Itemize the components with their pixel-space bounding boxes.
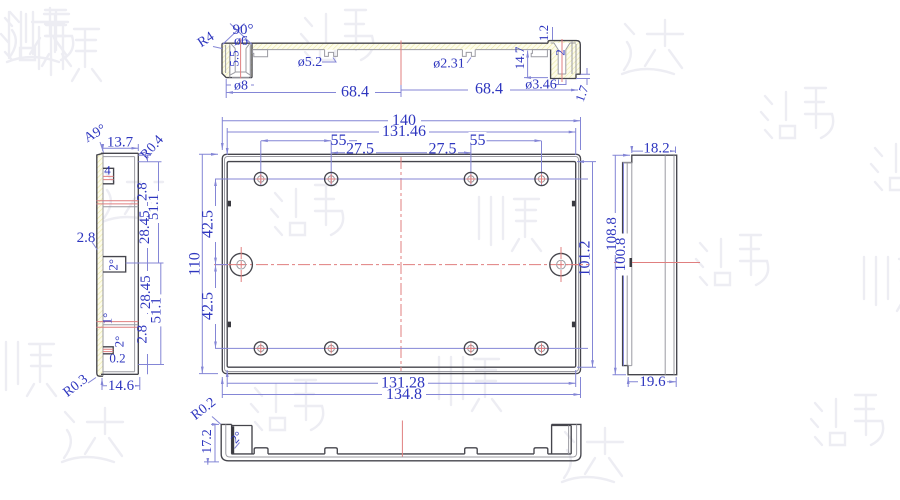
svg-text:R0.3: R0.3	[61, 372, 91, 400]
svg-text:0.2: 0.2	[109, 351, 125, 366]
svg-text:27.5: 27.5	[346, 141, 374, 158]
svg-text:110: 110	[187, 252, 204, 275]
svg-text:42.5: 42.5	[200, 292, 217, 320]
svg-text:42.5: 42.5	[200, 210, 217, 238]
svg-text:2: 2	[553, 49, 568, 56]
svg-text:134.8: 134.8	[386, 386, 422, 403]
svg-text:2.8: 2.8	[77, 230, 96, 246]
svg-text:131.46: 131.46	[382, 123, 426, 140]
svg-text:2.8: 2.8	[134, 325, 150, 344]
svg-text:13.7: 13.7	[107, 135, 134, 151]
svg-text:18.2: 18.2	[643, 140, 669, 156]
svg-text:2°: 2°	[228, 428, 246, 446]
svg-text:5.5: 5.5	[227, 50, 242, 66]
svg-text:100.8: 100.8	[613, 238, 629, 272]
svg-text:27.5: 27.5	[429, 141, 457, 158]
svg-text:R0.4: R0.4	[138, 133, 167, 163]
svg-text:2°: 2°	[106, 259, 121, 271]
svg-text:ø2.31: ø2.31	[433, 57, 465, 72]
svg-text:2°: 2°	[112, 336, 127, 348]
svg-text:68.4: 68.4	[341, 84, 369, 101]
svg-text:ø8: ø8	[234, 79, 248, 94]
svg-text:ø6: ø6	[234, 34, 248, 49]
svg-text:A9°: A9°	[82, 122, 109, 146]
svg-text:101.2: 101.2	[577, 241, 594, 277]
svg-text:1°: 1°	[100, 313, 115, 325]
svg-text:51.1: 51.1	[146, 194, 162, 220]
svg-text:4: 4	[104, 163, 111, 178]
svg-text:55: 55	[331, 132, 347, 149]
svg-text:ø3.46: ø3.46	[525, 78, 557, 93]
svg-text:R4: R4	[195, 29, 217, 50]
svg-text:68.4: 68.4	[475, 81, 503, 98]
svg-text:19.6: 19.6	[639, 374, 666, 390]
svg-text:1.7: 1.7	[572, 83, 592, 104]
svg-text:1.2: 1.2	[536, 25, 551, 41]
svg-text:17.2: 17.2	[200, 429, 215, 454]
svg-text:14.6: 14.6	[108, 378, 135, 394]
svg-text:51.1: 51.1	[148, 297, 164, 323]
svg-text:ø5.2: ø5.2	[298, 55, 323, 70]
svg-text:14.7: 14.7	[512, 46, 527, 69]
svg-text:55: 55	[470, 132, 486, 149]
